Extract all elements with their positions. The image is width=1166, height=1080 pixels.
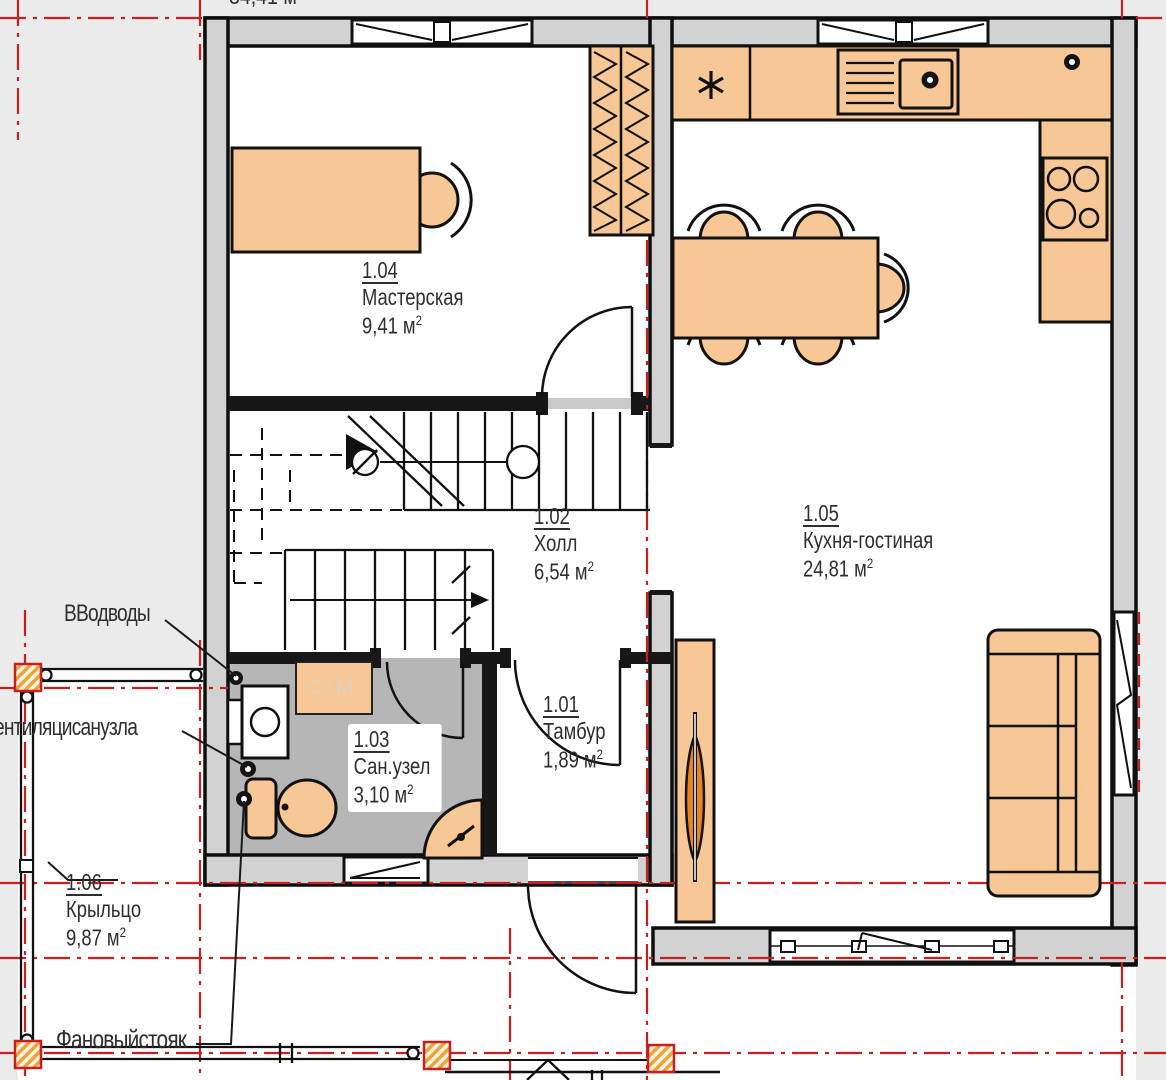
- window-workshop-top: [352, 20, 532, 44]
- wall-hall-workshop: [228, 396, 545, 411]
- wall-hall-tambour: [625, 652, 672, 664]
- door-threshold-workshop: [545, 398, 636, 409]
- room-label-104: 1.04 Мастерская 9,41 м2: [362, 258, 464, 338]
- window-kitchen-top: [818, 20, 988, 44]
- stair-marker-circle: [507, 446, 539, 478]
- washing-machine-label: Ст.М.: [296, 662, 372, 714]
- room-label-105: 1.05 Кухня-гостиная 24,81 м2: [803, 501, 933, 581]
- door-jamb: [500, 648, 511, 668]
- room-label-103: 1.03 Сан.узел 3,10 м2: [348, 724, 442, 812]
- door-jamb: [620, 648, 631, 668]
- room-label-101: 1.01 Тамбур 1,89 м2: [543, 692, 605, 772]
- room-label-106: 1.06 Крыльцо 9,87 м2: [66, 870, 141, 950]
- dining-table: [673, 238, 878, 338]
- annotation-bath-vent: ентиляцисанузла: [0, 714, 137, 742]
- annotation-water-inlet: ВВодводы: [64, 600, 150, 628]
- wall-right: [1112, 18, 1136, 965]
- sofa: [988, 630, 1100, 896]
- post-hatched: [648, 1045, 674, 1072]
- opening-lintel: [650, 443, 672, 448]
- wall-middle-lower: [650, 593, 672, 885]
- workshop-desk: [232, 148, 420, 252]
- toilet: [246, 779, 336, 838]
- room-label-102: 1.02 Холл 6,54 м2: [534, 504, 594, 584]
- wall-bath-tambour: [482, 660, 497, 855]
- annotation-sewer-riser: Фановыйстояк: [56, 1024, 186, 1055]
- partial-area-text: 34,41 м: [229, 0, 297, 10]
- opening-lintel: [650, 590, 672, 595]
- window-living-right: [1114, 612, 1134, 795]
- post-hatched: [424, 1042, 450, 1069]
- post-hatched: [15, 664, 41, 691]
- plant-stand: [676, 640, 714, 922]
- door-jamb: [460, 648, 471, 668]
- counter-fixture-dot-center: [1069, 59, 1075, 65]
- floor-plan: 34,41 м 1.04 Мастерская 9,41 м2 1.02 Хол…: [0, 0, 1166, 1080]
- wardrobe: [590, 46, 653, 235]
- post-hatched: [15, 1041, 41, 1068]
- stove: [1043, 158, 1107, 240]
- entrance-door-opening: [528, 857, 638, 883]
- window-bath-bottom: [344, 857, 428, 883]
